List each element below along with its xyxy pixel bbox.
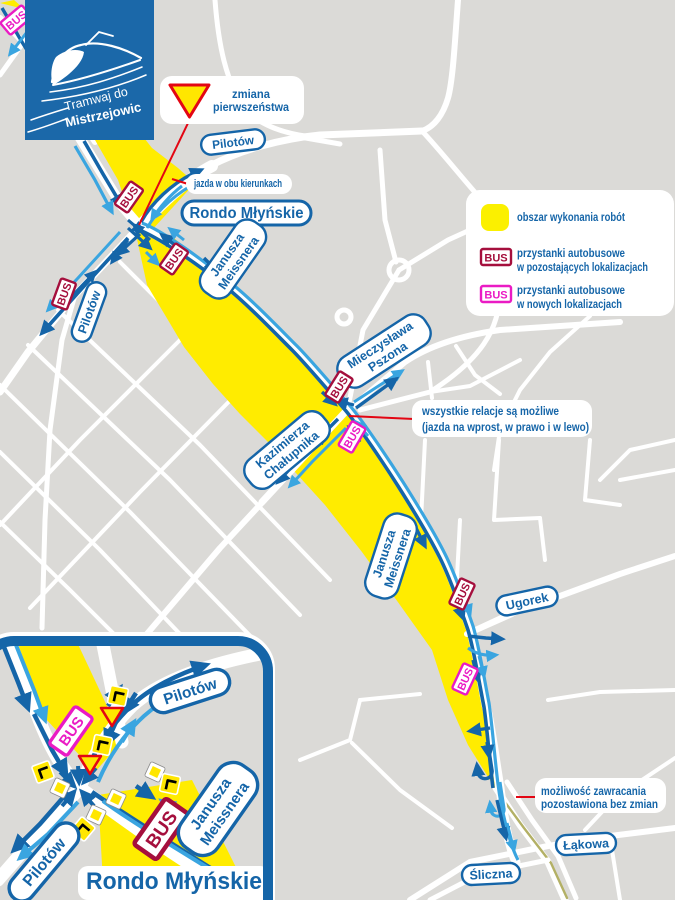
- svg-text:Łąkowa: Łąkowa: [563, 836, 611, 852]
- svg-text:wszystkie relacje są możliwe: wszystkie relacje są możliwe: [421, 404, 559, 418]
- svg-text:BUS: BUS: [484, 290, 507, 302]
- svg-text:przystanki autobusowe: przystanki autobusowe: [517, 248, 625, 260]
- svg-text:pozostawiona bez zmian: pozostawiona bez zmian: [541, 797, 658, 811]
- svg-text:Śliczna: Śliczna: [469, 865, 514, 882]
- svg-text:w nowych lokalizacjach: w nowych lokalizacjach: [516, 299, 622, 311]
- svg-text:możliwość zawracania: możliwość zawracania: [541, 784, 646, 798]
- svg-text:w pozostających lokalizacjach: w pozostających lokalizacjach: [516, 262, 648, 274]
- svg-text:zmiana: zmiana: [232, 89, 271, 101]
- svg-text:Rondo Młyńskie: Rondo Młyńskie: [86, 868, 262, 895]
- svg-text:jazda w obu kierunkach: jazda w obu kierunkach: [193, 178, 282, 190]
- svg-text:przystanki autobusowe: przystanki autobusowe: [517, 285, 625, 297]
- svg-text:(jazda na wprost, w prawo i w: (jazda na wprost, w prawo i w lewo): [422, 420, 589, 434]
- svg-text:BUS: BUS: [484, 253, 507, 265]
- svg-text:obszar wykonania robót: obszar wykonania robót: [517, 210, 625, 224]
- svg-text:pierwszeństwa: pierwszeństwa: [213, 102, 290, 114]
